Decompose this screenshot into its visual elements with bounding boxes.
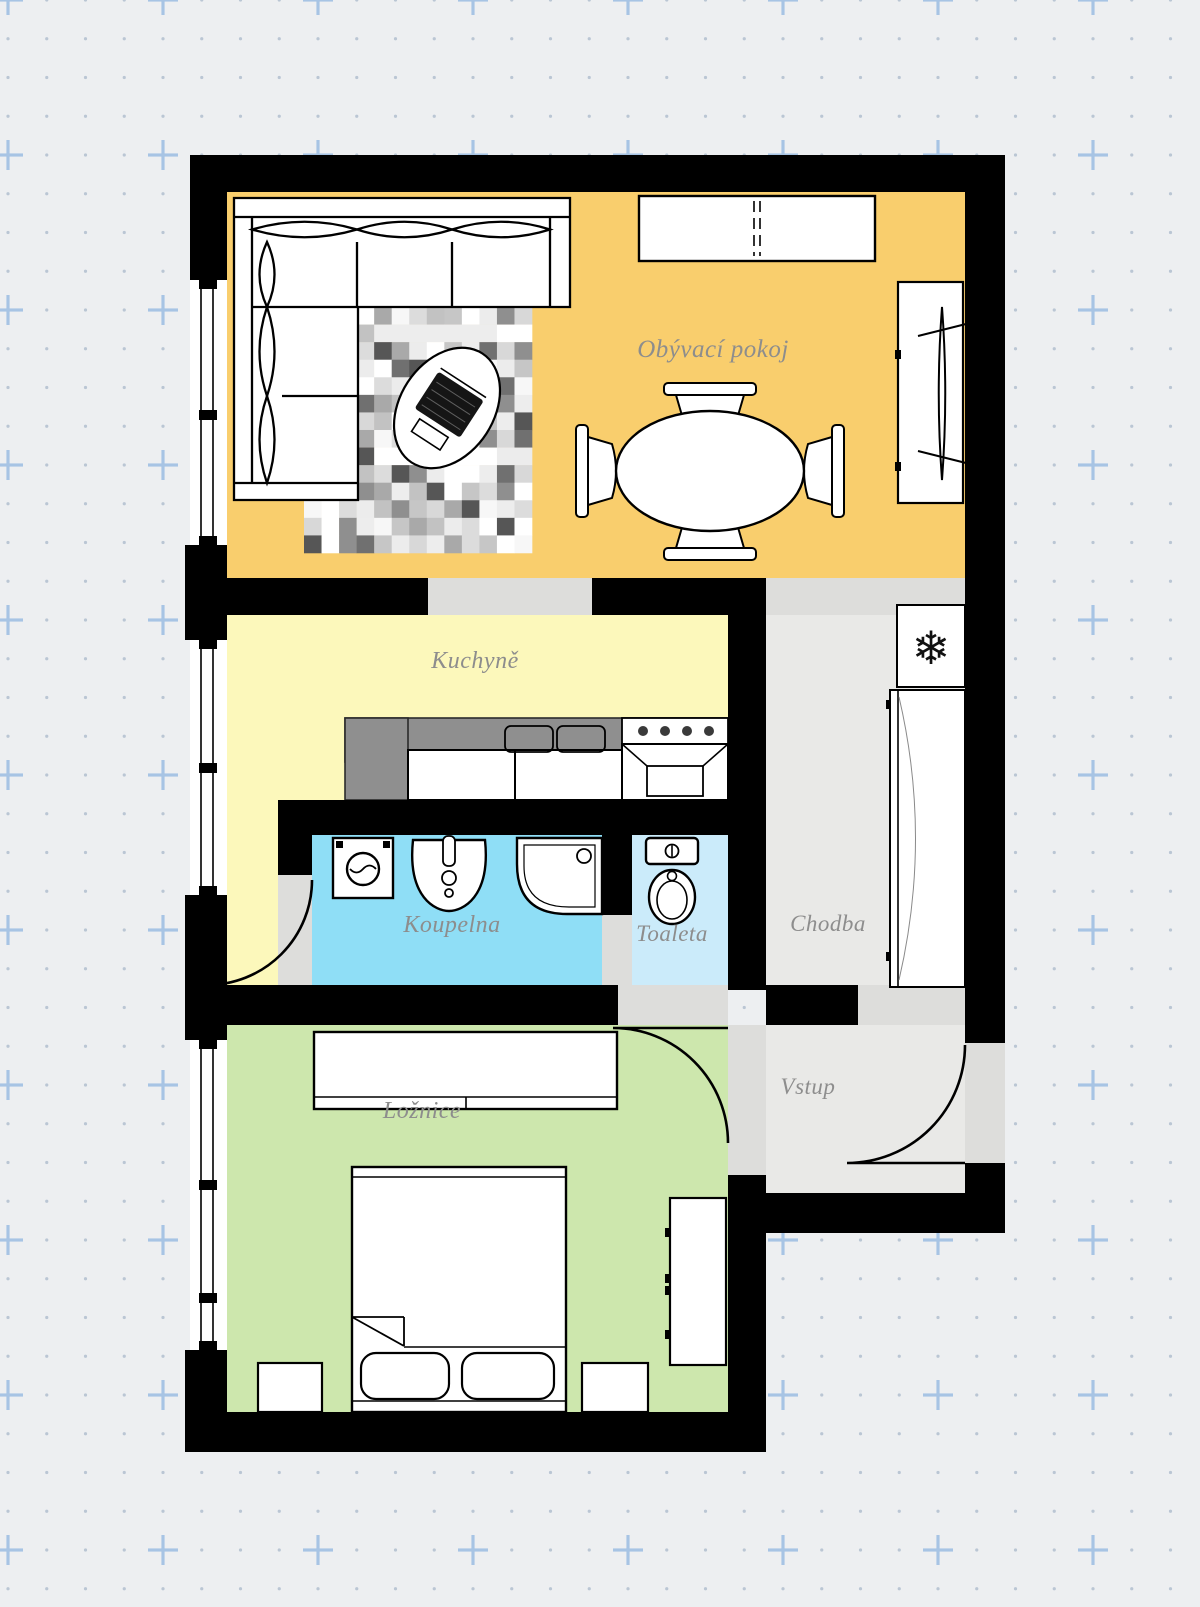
wall-left-segment (185, 545, 227, 640)
rug-tile (392, 342, 410, 360)
rug-tile (374, 395, 392, 413)
rug-tile (479, 325, 497, 343)
rug-tile (497, 360, 515, 378)
rug-tile (444, 500, 462, 518)
threshold-bathroom-door (278, 875, 312, 985)
rug-tile (357, 377, 375, 395)
room-label-toilet: Toaleta (636, 921, 708, 946)
window-kitchen (190, 640, 227, 895)
rug-tile (357, 325, 375, 343)
kitchen-sink (622, 744, 728, 800)
rug-tile (374, 500, 392, 518)
floor-plan-canvas: ❄ (0, 0, 1200, 1607)
kitchen-counter (345, 718, 728, 800)
windows (190, 280, 227, 1350)
rug-tile (409, 307, 427, 325)
rug-tile (392, 465, 410, 483)
floor-plan-svg: ❄ (0, 0, 1200, 1607)
rug-tile (304, 518, 322, 536)
rug-tile (514, 465, 532, 483)
rug-tile (444, 465, 462, 483)
rug-tile (409, 342, 427, 360)
rug-tile (479, 465, 497, 483)
rug-tile (374, 448, 392, 466)
shower (517, 838, 602, 914)
rug-tile (374, 325, 392, 343)
rug-tile (409, 500, 427, 518)
rug-tile (514, 342, 532, 360)
rug-tile (444, 518, 462, 536)
rug-tile (462, 325, 480, 343)
rug-tile (514, 395, 532, 413)
rug-tile (374, 307, 392, 325)
rug-tile (444, 307, 462, 325)
rug-tile (427, 500, 445, 518)
wall-mid-vertical (728, 578, 766, 990)
rug-tile (339, 535, 357, 553)
rug-tile (479, 448, 497, 466)
rug-tile (514, 325, 532, 343)
rug-tile (374, 430, 392, 448)
rug-tile (497, 465, 515, 483)
bedroom-wardrobe (314, 1032, 617, 1109)
wall-bathroom-left (278, 835, 312, 875)
tv-stand (895, 282, 966, 503)
rug-tile (357, 500, 375, 518)
bed (352, 1167, 566, 1412)
floor-kitchen-strip (227, 800, 278, 985)
rug-tile (427, 307, 445, 325)
rug-tile (392, 518, 410, 536)
rug-tile (322, 535, 340, 553)
wall-living-kitchen (227, 578, 428, 615)
toilet (646, 838, 698, 924)
dining-table (616, 411, 804, 531)
kitchen-cabinet (515, 750, 622, 800)
rug-tile (357, 535, 375, 553)
rug-tile (357, 448, 375, 466)
rug-tile (409, 518, 427, 536)
rug-tile (322, 518, 340, 536)
rug-tile (357, 430, 375, 448)
rug-tile (497, 430, 515, 448)
room-label-living-room: Obývací pokoj (637, 336, 789, 363)
wall-left-segment (185, 895, 227, 1040)
rug-tile (479, 500, 497, 518)
floor-entry (766, 1025, 965, 1193)
rug-tile (497, 307, 515, 325)
fridge: ❄ (897, 605, 965, 687)
wall-bath-toilet (602, 835, 632, 915)
room-label-bedroom: Ložnice (382, 1098, 461, 1124)
rug-tile (444, 325, 462, 343)
rug-tile (339, 518, 357, 536)
rug-tile (479, 307, 497, 325)
window-living-room (190, 280, 227, 545)
rug-tile (357, 518, 375, 536)
rug-tile (322, 500, 340, 518)
nightstand-left (258, 1363, 322, 1412)
rug-tile (497, 483, 515, 501)
stove-knobs (622, 718, 728, 744)
threshold-hallway-entry (858, 985, 965, 1025)
rug-tile (392, 325, 410, 343)
room-label-entry: Vstup (781, 1074, 836, 1099)
room-label-bathroom: Koupelna (402, 912, 500, 938)
rug-tile (462, 307, 480, 325)
rug-tile (427, 518, 445, 536)
washing-machine (333, 838, 393, 898)
threshold-bedroom-door-side (728, 1025, 766, 1175)
hallway-wardrobe (886, 690, 965, 987)
rug-tile (304, 500, 322, 518)
rug-tile (497, 342, 515, 360)
rug-tile (497, 412, 515, 430)
threshold-living-kitchen (428, 578, 592, 615)
snowflake-icon: ❄ (912, 621, 951, 675)
wall-bathroom-top (278, 800, 728, 835)
rug-tile (479, 483, 497, 501)
threshold-entry-door (965, 1043, 1005, 1163)
rug-tile (462, 535, 480, 553)
rug-tile (514, 377, 532, 395)
rug-tile (514, 518, 532, 536)
pillow (462, 1353, 554, 1399)
rug-tile (374, 360, 392, 378)
rug-tile (427, 483, 445, 501)
rug-tile (357, 465, 375, 483)
rug-tile (374, 377, 392, 395)
rug-tile (462, 483, 480, 501)
rug-tile (514, 500, 532, 518)
sideboard (639, 196, 875, 261)
tv (939, 307, 946, 480)
window-bedroom (190, 1040, 227, 1350)
rug-tile (427, 535, 445, 553)
rug-tile (357, 395, 375, 413)
kitchen-cabinet (408, 750, 515, 800)
nightstand-right (582, 1363, 648, 1412)
wall-hallway-entry-stub (766, 985, 858, 1025)
rug-tile (497, 325, 515, 343)
dresser (665, 1198, 726, 1365)
rug-tile (392, 360, 410, 378)
rug-tile (514, 448, 532, 466)
rug-tile (374, 483, 392, 501)
room-label-kitchen: Kuchyně (430, 648, 518, 674)
rug-tile (409, 535, 427, 553)
rug-tile (392, 500, 410, 518)
rug-tile (514, 483, 532, 501)
rug-tile (514, 307, 532, 325)
rug-tile (497, 448, 515, 466)
rug-tile (339, 500, 357, 518)
rug-tile (392, 307, 410, 325)
rug-tile (444, 483, 462, 501)
rug-tile (357, 483, 375, 501)
rug-tile (357, 412, 375, 430)
rug-tile (304, 535, 322, 553)
wall-bathroom-bedroom (227, 985, 618, 1025)
threshold-bedroom-door-top (618, 985, 728, 1025)
rug-tile (409, 483, 427, 501)
rug-tile (427, 325, 445, 343)
rug-tile (374, 342, 392, 360)
rug-tile (409, 325, 427, 343)
rug-tile (374, 518, 392, 536)
rug-tile (462, 465, 480, 483)
wall-top (190, 155, 1005, 192)
rug-tile (444, 535, 462, 553)
rug-tile (514, 412, 532, 430)
wall-left-segment (190, 155, 227, 280)
rug-tile (374, 535, 392, 553)
rug-tile (357, 307, 375, 325)
rug-tile (497, 500, 515, 518)
rug-tile (357, 342, 375, 360)
rug-tile (392, 483, 410, 501)
rug-tile (479, 535, 497, 553)
rug-tile (514, 430, 532, 448)
rug-tile (514, 360, 532, 378)
rug-tile (479, 518, 497, 536)
threshold-toilet-door (602, 915, 632, 985)
rug-tile (514, 535, 532, 553)
rug-tile (392, 535, 410, 553)
rug-tile (462, 518, 480, 536)
rug-tile (374, 412, 392, 430)
wall-entry-bottom (728, 1193, 1005, 1233)
rug-tile (497, 535, 515, 553)
rug-tile (357, 360, 375, 378)
wall-right-segment (965, 155, 1005, 1043)
pillow (361, 1353, 449, 1399)
rug-tile (374, 465, 392, 483)
rug-tile (497, 518, 515, 536)
rug-tile (462, 500, 480, 518)
room-label-hallway: Chodba (790, 911, 866, 936)
wall-bedroom-bottom (190, 1412, 728, 1452)
